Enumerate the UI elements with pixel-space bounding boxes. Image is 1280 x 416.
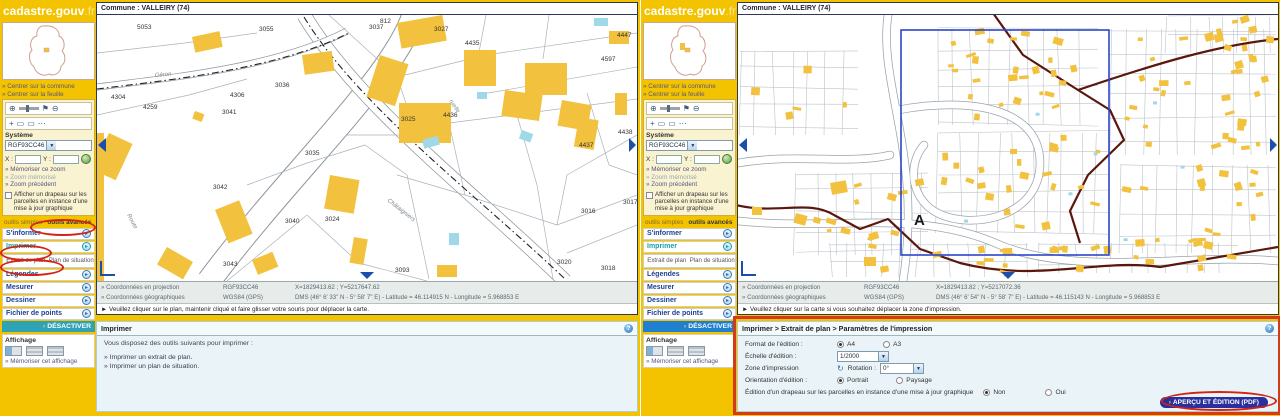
scale-row: Échelle d'édition : 1/2000 ▼: [745, 351, 1271, 362]
display-thumbnails: [5, 346, 92, 356]
coords-projection-system: RGF93CC46: [864, 283, 936, 293]
system-select-row: RGF93CC46 ▼: [646, 140, 733, 153]
sidebar-item-dessiner[interactable]: Dessiner ▸: [643, 295, 736, 307]
map-window: Commune : VALLEIRY (74): [96, 2, 638, 315]
radio-a4[interactable]: [837, 341, 844, 348]
radio-oui[interactable]: [1045, 389, 1052, 396]
commune-overview-minimap[interactable]: [2, 22, 95, 80]
display-thumbnail-2[interactable]: [667, 346, 684, 356]
coords-projection-value: X=1829413.82 ; Y=5217072.36: [936, 283, 1274, 293]
display-title: Affichage: [646, 337, 733, 344]
window-title: Commune : VALLEIRY (74): [738, 3, 1278, 15]
imprimer-subitems: Extrait de plan Plan de situation: [2, 254, 95, 268]
orientation-row: Orientation d'édition : Portrait Paysage: [745, 375, 1271, 386]
x-label: X :: [646, 156, 654, 163]
print-situation-link[interactable]: » Imprimer un plan de situation.: [104, 362, 630, 371]
subitem-extrait-de-plan[interactable]: Extrait de plan: [644, 257, 690, 264]
zoom-links: » Mémoriser ce zoom » Zoom mémorisé » Zo…: [646, 166, 733, 189]
toggle-icon[interactable]: ▸: [723, 242, 732, 251]
svg-text:3041: 3041: [222, 109, 237, 116]
pan-toolbar: + ▭ ▭ ⋯: [5, 117, 92, 130]
print-extrait-link[interactable]: » Imprimer un extrait de plan.: [104, 353, 630, 362]
format-label: Format de l'édition :: [745, 341, 837, 348]
deactivate-button[interactable]: ›DÉSACTIVER: [643, 321, 736, 332]
svg-text:4306: 4306: [230, 92, 245, 99]
radio-portrait[interactable]: [837, 377, 844, 384]
memorized-zoom-link[interactable]: » Zoom mémorisé: [646, 174, 733, 182]
svg-text:3043: 3043: [223, 261, 238, 268]
coords-geo-system: WGS84 (GPS): [864, 293, 936, 303]
move-icon[interactable]: +: [9, 118, 14, 129]
display-title: Affichage: [5, 337, 92, 344]
sidebar-item-mesurer[interactable]: Mesurer ▸: [643, 282, 736, 294]
help-icon[interactable]: ?: [1265, 324, 1274, 333]
flag-checkbox-label: Afficher un drapeau sur les parcelles en…: [655, 191, 733, 212]
paysage-label: Paysage: [906, 377, 932, 384]
coords-geo-value: DMS (46° 6' 54" N - 5° 58' 7" E) - Latit…: [936, 293, 1274, 303]
svg-text:3017: 3017: [623, 199, 637, 206]
print-panel-header: Imprimer ?: [97, 322, 637, 336]
coords-geo-value: DMS (46° 6' 33" N - 5° 58' 7" E) - Latit…: [295, 293, 633, 303]
display-thumbnail-1[interactable]: [646, 346, 663, 356]
orientation-label: Orientation d'édition :: [745, 377, 837, 384]
rotation-label: Rotation :: [848, 365, 876, 372]
print-parameters-header: Imprimer > Extrait de plan > Paramètres …: [738, 322, 1278, 336]
flag-checkbox-label: Afficher un drapeau sur les parcelles en…: [14, 191, 92, 212]
xy-row: X : Y :: [646, 154, 733, 164]
memorize-display-link[interactable]: » Mémoriser cet affichage: [646, 358, 733, 366]
sidebar-item-sinformer[interactable]: S'informer ▸: [2, 228, 95, 240]
print-panel-title: Imprimer: [101, 324, 132, 333]
tools-panel: ⊕ ⚑ ⊖ + ▭ ▭ ⋯ Système RGF93CC46 ▼ X : Y …: [2, 99, 95, 216]
sidebar-item-fichier-de-points[interactable]: Fichier de points ▸: [643, 308, 736, 320]
toggle-icon[interactable]: ▸: [82, 309, 91, 318]
status-bar: ► Veuillez cliquer sur le plan, mainteni…: [97, 303, 637, 314]
pan-right-arrow: [1270, 138, 1277, 152]
display-panel: Affichage » Mémoriser cet affichage: [2, 334, 95, 369]
oui-label: Oui: [1055, 389, 1065, 396]
system-label: Système: [5, 132, 92, 139]
sidebar-item-sinformer[interactable]: S'informer ▸: [643, 228, 736, 240]
x-input[interactable]: [656, 155, 682, 164]
zoom-links: » Mémoriser ce zoom » Zoom mémorisé » Zo…: [5, 166, 92, 189]
more-tools-icon[interactable]: ⋯: [38, 118, 46, 129]
display-panel: Affichage » Mémoriser cet affichage: [643, 334, 736, 369]
sidebar-item-imprimer[interactable]: Imprimer ▸: [643, 241, 736, 253]
svg-text:4304: 4304: [111, 94, 126, 101]
deactivate-button[interactable]: ›DÉSACTIVER: [2, 321, 95, 332]
zone-row: Zone d'impression ↻ Rotation : 0° ▼: [745, 363, 1271, 374]
svg-text:3024: 3024: [325, 216, 340, 223]
y-input[interactable]: [694, 155, 720, 164]
y-label: Y :: [43, 156, 51, 163]
dropdown-arrow-icon[interactable]: ▼: [913, 364, 923, 373]
svg-text:4437: 4437: [579, 142, 594, 149]
cadastre-logo: cadastre.gouv.fr: [643, 0, 736, 20]
center-commune-link[interactable]: » Centrer sur la commune: [2, 83, 95, 91]
zone-label: Zone d'impression: [745, 365, 837, 372]
coords-projection-label: » Coordonnées en projection: [742, 283, 864, 293]
svg-text:3020: 3020: [557, 259, 572, 266]
zoom-in-icon[interactable]: ⊕: [650, 103, 657, 114]
system-select[interactable]: RGF93CC46 ▼: [5, 140, 92, 151]
pan-corner-arrow: [742, 261, 756, 275]
scale-label: Échelle d'édition :: [745, 353, 837, 360]
sidebar: cadastre.gouv.fr » Centrer sur la commun…: [643, 0, 736, 368]
sidebar-item-mesurer[interactable]: Mesurer ▸: [2, 282, 95, 294]
rotation-select[interactable]: 0° ▼: [880, 363, 924, 374]
svg-text:3025: 3025: [401, 116, 416, 123]
chevron-icon: ›: [1169, 399, 1171, 406]
svg-text:3042: 3042: [213, 184, 228, 191]
flag-icon[interactable]: ⚑: [683, 103, 690, 114]
memorize-display-link[interactable]: » Mémoriser cet affichage: [5, 358, 92, 366]
svg-text:3018: 3018: [601, 265, 616, 272]
memorize-zoom-link[interactable]: » Mémoriser ce zoom: [5, 166, 92, 174]
svg-text:5053: 5053: [137, 24, 152, 31]
map-canvas[interactable]: A: [738, 15, 1278, 281]
system-label: Système: [646, 132, 733, 139]
toggle-icon[interactable]: ▸: [82, 283, 91, 292]
window-title: Commune : VALLEIRY (74): [97, 3, 637, 15]
buildings: [97, 15, 629, 281]
chevron-icon: ›: [43, 323, 45, 330]
center-feuille-link[interactable]: » Centrer sur la feuille: [2, 91, 95, 99]
toggle-icon[interactable]: ▸: [723, 229, 732, 238]
portrait-label: Portrait: [847, 377, 868, 384]
sidebar: cadastre.gouv.fr » Centrer sur la commun…: [2, 0, 95, 368]
pan-right-arrow: [629, 138, 636, 152]
pan-down-arrow: [360, 272, 374, 279]
map-canvas[interactable]: 5053305581230274304430642593036304130374…: [97, 15, 637, 281]
previous-zoom-link[interactable]: » Zoom précédent: [5, 181, 92, 189]
toggle-icon[interactable]: ▸: [723, 296, 732, 305]
zoom-toolbar: ⊕ ⚑ ⊖: [5, 102, 92, 115]
svg-text:Châtaigniers: Châtaigniers: [386, 198, 416, 223]
right-screenshot: cadastre.gouv.fr » Centrer sur la commun…: [640, 0, 1280, 416]
apercu-edition-pdf-button[interactable]: ›APERÇU ET ÉDITION (PDF): [1160, 397, 1268, 408]
tab-outils-avances[interactable]: outils avancés: [688, 219, 732, 226]
display-thumbnail-3[interactable]: [47, 346, 64, 356]
svg-text:4435: 4435: [465, 40, 480, 47]
toggle-icon[interactable]: ▸: [723, 309, 732, 318]
xy-row: X : Y :: [5, 154, 92, 164]
tools-panel: ⊕ ⚑ ⊖ + ▭ ▭ ⋯ Système RGF93CC46 ▼ X : Y …: [643, 99, 736, 216]
x-label: X :: [5, 156, 13, 163]
memorize-zoom-link[interactable]: » Mémoriser ce zoom: [646, 166, 733, 174]
coordinates-bar: » Coordonnées en projection RGF93CC46 X=…: [738, 281, 1278, 303]
svg-text:3037: 3037: [369, 24, 384, 31]
print-parameters-title: Imprimer > Extrait de plan > Paramètres …: [742, 324, 932, 333]
toggle-icon[interactable]: ▸: [723, 283, 732, 292]
svg-text:4438: 4438: [618, 129, 633, 136]
radio-paysage[interactable]: [896, 377, 903, 384]
non-label: Non: [993, 389, 1005, 396]
subitem-plan-de-situation[interactable]: Plan de situation: [690, 257, 736, 264]
svg-text:4447: 4447: [617, 32, 632, 39]
center-commune-link[interactable]: » Centrer sur la commune: [643, 83, 736, 91]
svg-text:Route: Route: [125, 213, 138, 231]
go-to-xy-button[interactable]: [722, 154, 732, 164]
svg-text:3016: 3016: [581, 208, 596, 215]
svg-text:3055: 3055: [259, 26, 274, 33]
subitem-plan-de-situation[interactable]: Plan de situation: [49, 257, 95, 264]
dropdown-arrow-icon[interactable]: ▼: [687, 141, 697, 150]
svg-text:4259: 4259: [143, 104, 158, 111]
print-panel-body: Vous disposez des outils suivants pour i…: [97, 336, 637, 375]
previous-zoom-link[interactable]: » Zoom précédent: [646, 181, 733, 189]
sidebar-item-legendes[interactable]: Légendes ▸: [2, 269, 95, 281]
help-icon[interactable]: ?: [624, 324, 633, 333]
left-screenshot: cadastre.gouv.fr » Centrer sur la commun…: [0, 0, 640, 416]
zoom-rect-icon[interactable]: ▭: [27, 118, 35, 129]
toggle-icon[interactable]: ▸: [82, 270, 91, 279]
coords-projection-system: RGF93CC46: [223, 283, 295, 293]
cadastre-logo: cadastre.gouv.fr: [2, 0, 95, 20]
toggle-icon[interactable]: ▸: [82, 296, 91, 305]
zoom-out-icon[interactable]: ⊖: [52, 103, 59, 114]
a3-label: A3: [893, 341, 901, 348]
coords-projection-value: X=1829413.62 ; Y=5217647.62: [295, 283, 633, 293]
svg-text:3027: 3027: [434, 26, 449, 33]
display-thumbnail-1[interactable]: [5, 346, 22, 356]
go-to-xy-button[interactable]: [81, 154, 91, 164]
svg-text:3093: 3093: [395, 267, 410, 274]
zoom-toolbar: ⊕ ⚑ ⊖: [646, 102, 733, 115]
refresh-icon[interactable]: ↻: [837, 364, 844, 373]
format-row: Format de l'édition : A4 A3: [745, 339, 1271, 350]
x-input[interactable]: [15, 155, 41, 164]
flag-checkbox-row: Afficher un drapeau sur les parcelles en…: [5, 191, 92, 212]
commune-overview-minimap[interactable]: [643, 22, 736, 80]
center-links: » Centrer sur la commune » Centrer sur l…: [643, 82, 736, 99]
print-zone-rect: [901, 30, 1109, 255]
y-input[interactable]: [53, 155, 79, 164]
tools-tabs: outils simples outils avancés: [2, 216, 95, 228]
pan-left-arrow: [739, 138, 747, 152]
screen: cadastre.gouv.fr » Centrer sur la commun…: [0, 0, 1280, 416]
scale-select[interactable]: 1/2000 ▼: [837, 351, 889, 362]
zoom-in-icon[interactable]: ⊕: [9, 103, 16, 114]
coords-projection-label: » Coordonnées en projection: [101, 283, 223, 293]
print-panel: Imprimer ? Vous disposez des outils suiv…: [96, 321, 638, 412]
toggle-icon[interactable]: ▸: [82, 229, 91, 238]
more-tools-icon[interactable]: ⋯: [679, 118, 687, 129]
zoom-out-icon[interactable]: ⊖: [693, 103, 700, 114]
system-select-row: RGF93CC46 ▼: [5, 140, 92, 153]
print-parameters-body: Format de l'édition : A4 A3 Échelle d'éd…: [738, 336, 1278, 401]
radio-non[interactable]: [983, 389, 990, 396]
center-feuille-link[interactable]: » Centrer sur la feuille: [643, 91, 736, 99]
tab-outils-simples[interactable]: outils simples: [4, 219, 42, 226]
dropdown-arrow-icon[interactable]: ▼: [46, 141, 56, 150]
radio-a3[interactable]: [883, 341, 890, 348]
print-intro-text: Vous disposez des outils suivants pour i…: [104, 340, 630, 347]
toggle-icon[interactable]: ▸: [723, 270, 732, 279]
coords-geo-label: » Coordonnées géographiques: [742, 293, 864, 303]
imprimer-subitems: Extrait de plan Plan de situation: [643, 254, 736, 268]
center-links: » Centrer sur la commune » Centrer sur l…: [2, 82, 95, 99]
sidebar-item-fichier-de-points[interactable]: Fichier de points ▸: [2, 308, 95, 320]
tab-outils-simples[interactable]: outils simples: [645, 219, 683, 226]
flag-checkbox[interactable]: [5, 192, 12, 199]
display-thumbnails: [646, 346, 733, 356]
display-thumbnail-2[interactable]: [26, 346, 43, 356]
map-window: Commune : VALLEIRY (74) A » Coordonnées …: [737, 2, 1279, 315]
subitem-extrait-de-plan[interactable]: Extrait de plan: [3, 257, 49, 264]
dropdown-arrow-icon[interactable]: ▼: [878, 352, 888, 361]
system-select[interactable]: RGF93CC46 ▼: [646, 140, 733, 151]
svg-text:3035: 3035: [305, 150, 320, 157]
svg-text:3036: 3036: [275, 82, 290, 89]
commune-outline: [3, 23, 92, 79]
flag-checkbox[interactable]: [646, 192, 653, 199]
status-bar: ► Veuillez cliquer sur la carte si vous …: [738, 303, 1278, 314]
commune-outline: [644, 23, 733, 79]
flag-checkbox-row: Afficher un drapeau sur les parcelles en…: [646, 191, 733, 212]
zoom-slider[interactable]: [19, 107, 39, 110]
sidebar-item-dessiner[interactable]: Dessiner ▸: [2, 295, 95, 307]
print-parameters-panel: Imprimer > Extrait de plan > Paramètres …: [737, 321, 1279, 412]
tools-tabs: outils simples outils avancés: [643, 216, 736, 228]
sidebar-item-imprimer[interactable]: Imprimer ▸: [2, 241, 95, 253]
flag-icon[interactable]: ⚑: [42, 103, 49, 114]
a4-label: A4: [847, 341, 855, 348]
zoom-rect-icon[interactable]: ▭: [668, 118, 676, 129]
pan-down-arrow: [1001, 272, 1015, 279]
coordinates-bar: » Coordonnées en projection RGF93CC46 X=…: [97, 281, 637, 303]
chevron-icon: ›: [684, 323, 686, 330]
pan-toolbar: + ▭ ▭ ⋯: [646, 117, 733, 130]
zoom-slider[interactable]: [660, 107, 680, 110]
display-thumbnail-3[interactable]: [688, 346, 705, 356]
select-rect-icon[interactable]: ▭: [17, 118, 25, 129]
coords-geo-system: WGS84 (GPS): [223, 293, 295, 303]
svg-text:4597: 4597: [601, 56, 616, 63]
svg-text:3040: 3040: [285, 218, 300, 225]
coords-geo-label: » Coordonnées géographiques: [101, 293, 223, 303]
y-label: Y :: [684, 156, 692, 163]
select-rect-icon[interactable]: ▭: [658, 118, 666, 129]
flag-edition-label: Édition d'un drapeau sur les parcelles e…: [745, 389, 973, 396]
toggle-icon[interactable]: ▸: [82, 242, 91, 251]
memorized-zoom-link[interactable]: » Zoom mémorisé: [5, 174, 92, 182]
tab-outils-avances[interactable]: outils avancés: [47, 219, 91, 226]
sidebar-item-legendes[interactable]: Légendes ▸: [643, 269, 736, 281]
move-icon[interactable]: +: [650, 118, 655, 129]
svg-text:A: A: [914, 212, 925, 229]
